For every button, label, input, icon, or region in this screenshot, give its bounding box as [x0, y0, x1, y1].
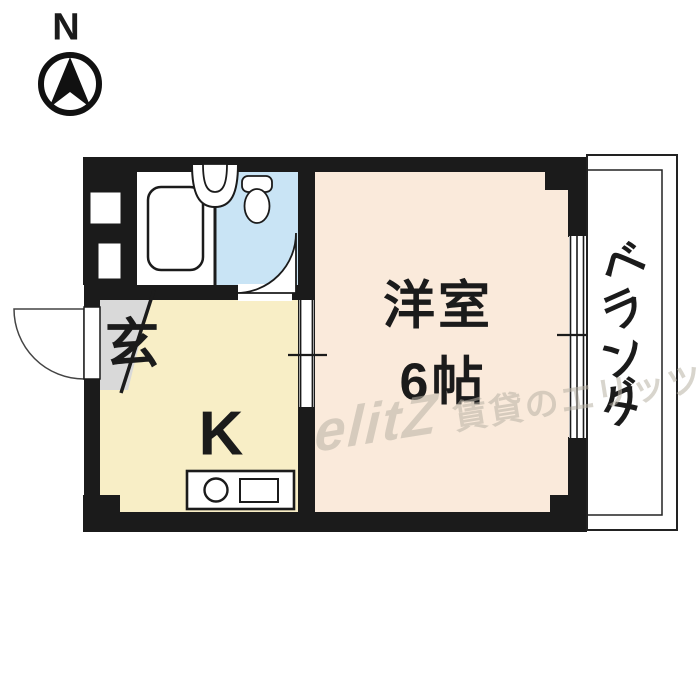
- genkan-label: 玄: [105, 300, 159, 379]
- western-room-label-line1: 洋室: [383, 264, 493, 339]
- wall-niche-upper: [90, 192, 121, 224]
- western-room-label-line2: 6帖: [400, 340, 487, 415]
- veranda-char: ダ: [593, 374, 652, 435]
- washbasin-icon: [192, 164, 238, 207]
- floorplan-image: N 玄 K 洋室 6帖 ベ ラ ン ダ elitZ 賃貸のエリッツ: [0, 0, 700, 700]
- compass-north-label: N: [52, 7, 79, 50]
- entry-door-swing-icon: [14, 309, 84, 379]
- toilet-icon: [242, 176, 272, 223]
- veranda-label: ベ ラ ン ダ: [600, 240, 646, 428]
- kitchen-counter-icon: [187, 471, 294, 509]
- entry-door-leaf: [84, 307, 100, 379]
- compass-icon: [41, 55, 99, 113]
- wall-niche-lower: [98, 243, 121, 279]
- sink-icon: [240, 479, 278, 502]
- bathtub-icon: [148, 187, 203, 270]
- burner-icon: [205, 479, 228, 502]
- kitchen-label: K: [199, 399, 244, 470]
